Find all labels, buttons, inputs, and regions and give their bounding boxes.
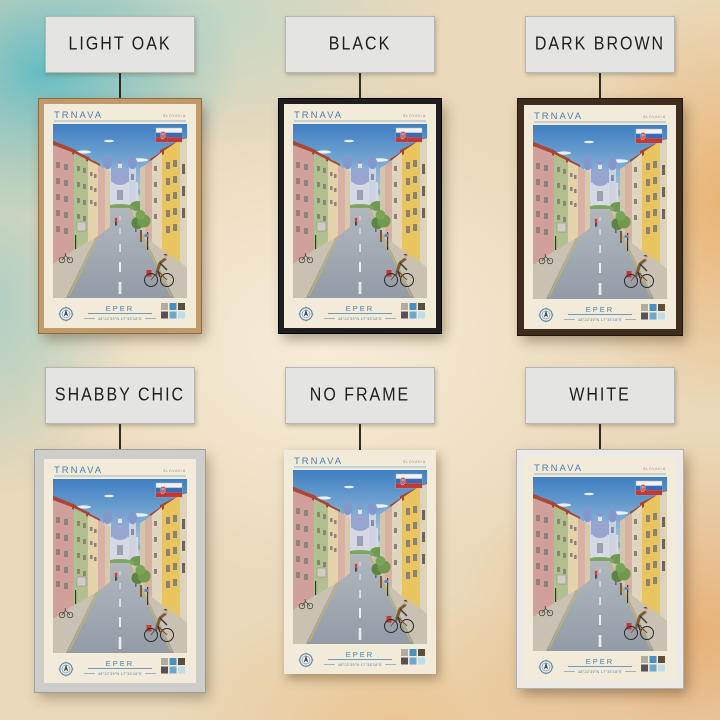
framed-poster-dark-brown: TRNAVA SLOVAKIA — [518, 99, 682, 335]
street-scene — [531, 477, 669, 651]
poster-title: TRNAVA — [534, 111, 583, 122]
poster-artwork: TRNAVA SLOVAKIA — [284, 450, 436, 674]
poster-country: SLOVAKIA — [163, 114, 186, 118]
variant-label: BLACK — [329, 34, 391, 55]
poster: TRNAVA SLOVAKIA — [284, 104, 436, 328]
variant-label: DARK BROWN — [535, 34, 665, 55]
poster-country: SLOVAKIA — [163, 469, 186, 473]
variant-card-dark-brown: DARK BROWN TRNAVA SLOVAKIA — [518, 16, 682, 335]
poster-title: TRNAVA — [54, 465, 103, 476]
poster-coordinates: 48°22'39"N 17°35'18"E — [578, 318, 622, 322]
slovakia-flag — [156, 128, 182, 142]
variant-card-white: WHITE TRNAVA SLOVAKIA — [517, 367, 683, 692]
variant-label-box: DARK BROWN — [525, 16, 675, 73]
poster: TRNAVA SLOVAKIA — [44, 459, 196, 683]
slovakia-flag — [636, 481, 662, 495]
poster-title: TRNAVA — [294, 110, 343, 121]
hanging-wire — [359, 424, 361, 450]
variant-card-shabby-chic: SHABBY CHIC TRNAVA SLOVAKIA — [35, 367, 205, 692]
variant-label: WHITE — [569, 385, 631, 406]
poster-coordinates: 48°22'39"N 17°35'18"E — [98, 672, 142, 676]
poster-coordinates: 48°22'39"N 17°35'18"E — [338, 317, 382, 321]
poster-coordinates: 48°22'39"N 17°35'18"E — [578, 670, 622, 674]
poster-artwork: TRNAVA SLOVAKIA — [284, 104, 436, 328]
poster: TRNAVA SLOVAKIA — [524, 457, 676, 681]
variant-label: LIGHT OAK — [68, 34, 171, 55]
variant-label-box: LIGHT OAK — [45, 16, 195, 73]
poster-subtitle: EPER — [106, 304, 134, 313]
variant-label-box: BLACK — [285, 16, 435, 73]
variant-label: NO FRAME — [310, 385, 410, 406]
variant-label: SHABBY CHIC — [55, 385, 185, 406]
framed-poster-light-oak: TRNAVA SLOVAKIA — [39, 99, 201, 333]
poster-subtitle: EPER — [106, 659, 134, 668]
poster-country: SLOVAKIA — [643, 467, 666, 471]
poster-country: SLOVAKIA — [643, 115, 666, 119]
poster-title: TRNAVA — [54, 110, 103, 121]
hanging-wire — [359, 73, 361, 99]
poster-subtitle: EPER — [586, 305, 614, 314]
framed-poster-no-frame: TRNAVA SLOVAKIA — [284, 450, 436, 674]
poster: TRNAVA SLOVAKIA — [44, 104, 196, 328]
poster-title: TRNAVA — [294, 456, 343, 467]
poster-country: SLOVAKIA — [403, 114, 426, 118]
slovakia-flag — [396, 474, 422, 488]
poster-subtitle: EPER — [346, 304, 374, 313]
street-scene — [291, 124, 429, 298]
street-scene — [291, 470, 429, 644]
poster-artwork: TRNAVA SLOVAKIA — [524, 105, 676, 329]
poster-title: TRNAVA — [534, 463, 583, 474]
poster: TRNAVA SLOVAKIA — [284, 450, 436, 674]
slovakia-flag — [396, 128, 422, 142]
hanging-wire — [599, 424, 601, 450]
hanging-wire — [119, 73, 121, 99]
framed-poster-black: TRNAVA SLOVAKIA — [279, 99, 441, 333]
hanging-wire — [119, 424, 121, 450]
variant-label-box: SHABBY CHIC — [45, 367, 195, 424]
framed-poster-white: TRNAVA SLOVAKIA — [517, 450, 683, 688]
slovakia-flag — [156, 483, 182, 497]
slovakia-flag — [636, 129, 662, 143]
variant-card-light-oak: LIGHT OAK TRNAVA SLOVAKIA — [39, 16, 201, 335]
poster-artwork: TRNAVA SLOVAKIA — [44, 104, 196, 328]
street-scene — [531, 125, 669, 299]
poster: TRNAVA SLOVAKIA — [524, 105, 676, 329]
variant-card-no-frame: NO FRAME TRNAVA SLOVAKIA — [284, 367, 436, 692]
hanging-wire — [599, 73, 601, 99]
poster-coordinates: 48°22'39"N 17°35'18"E — [98, 317, 142, 321]
poster-artwork: TRNAVA SLOVAKIA — [524, 457, 676, 681]
variant-label-box: NO FRAME — [285, 367, 435, 424]
framed-poster-shabby-chic: TRNAVA SLOVAKIA — [35, 450, 205, 692]
poster-subtitle: EPER — [346, 650, 374, 659]
poster-coordinates: 48°22'39"N 17°35'18"E — [338, 663, 382, 667]
variant-label-box: WHITE — [525, 367, 675, 424]
variant-card-black: BLACK TRNAVA SLOVAKIA — [279, 16, 441, 335]
street-scene — [51, 479, 189, 653]
variant-board: LIGHT OAK TRNAVA SLOVAKIA — [0, 0, 720, 692]
poster-country: SLOVAKIA — [403, 460, 426, 464]
poster-artwork: TRNAVA SLOVAKIA — [44, 459, 196, 683]
poster-subtitle: EPER — [586, 657, 614, 666]
street-scene — [51, 124, 189, 298]
